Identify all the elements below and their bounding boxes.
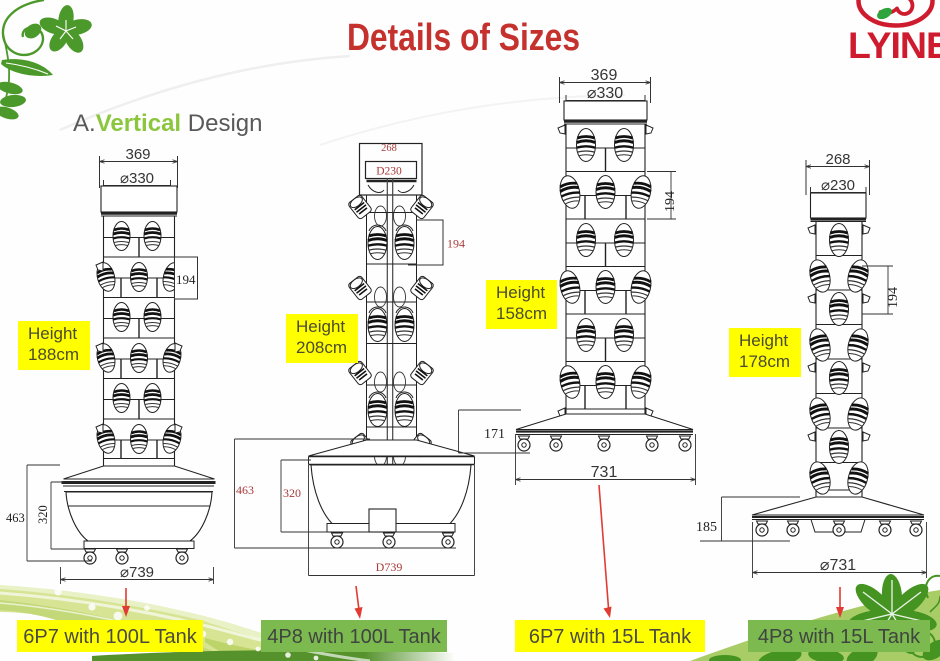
svg-text:185: 185	[696, 520, 717, 535]
svg-text:194: 194	[176, 272, 196, 287]
svg-text:D739: D739	[376, 560, 403, 574]
svg-text:178cm: 178cm	[739, 352, 790, 371]
svg-text:D230: D230	[376, 166, 402, 178]
svg-text:268: 268	[825, 151, 850, 168]
svg-text:463: 463	[6, 511, 25, 525]
svg-text:⌀731: ⌀731	[820, 557, 856, 574]
svg-text:Height: Height	[296, 317, 345, 336]
svg-text:Height: Height	[28, 324, 77, 343]
svg-text:Height: Height	[739, 331, 788, 350]
svg-text:4P8 with 100L Tank: 4P8 with 100L Tank	[267, 626, 441, 648]
svg-text:6P7 with 15L Tank: 6P7 with 15L Tank	[529, 626, 692, 648]
svg-text:⌀739: ⌀739	[120, 564, 154, 581]
svg-text:320: 320	[36, 505, 50, 524]
svg-text:320: 320	[283, 486, 301, 500]
svg-text:194: 194	[886, 287, 901, 308]
svg-text:369: 369	[591, 67, 618, 84]
svg-text:A.Vertical Design: A.Vertical Design	[73, 110, 262, 137]
svg-text:4P8 with 15L Tank: 4P8 with 15L Tank	[758, 626, 921, 648]
svg-text:158cm: 158cm	[496, 304, 547, 323]
svg-text:208cm: 208cm	[296, 338, 347, 357]
svg-text:171: 171	[484, 427, 505, 442]
svg-text:188cm: 188cm	[28, 345, 79, 364]
svg-text:731: 731	[591, 464, 618, 481]
svg-text:6P7 with 100L Tank: 6P7 with 100L Tank	[23, 626, 197, 648]
svg-text:LYINE: LYINE	[848, 24, 940, 66]
svg-text:268: 268	[381, 143, 397, 154]
svg-text:⌀330: ⌀330	[120, 170, 154, 187]
svg-text:⌀230: ⌀230	[821, 177, 855, 194]
svg-text:Details of Sizes: Details of Sizes	[347, 17, 580, 59]
svg-text:194: 194	[447, 237, 465, 251]
svg-text:369: 369	[125, 146, 150, 163]
svg-text:Height: Height	[496, 283, 545, 302]
svg-text:⌀330: ⌀330	[587, 85, 623, 102]
svg-text:194: 194	[663, 191, 678, 212]
svg-text:463: 463	[236, 483, 254, 497]
